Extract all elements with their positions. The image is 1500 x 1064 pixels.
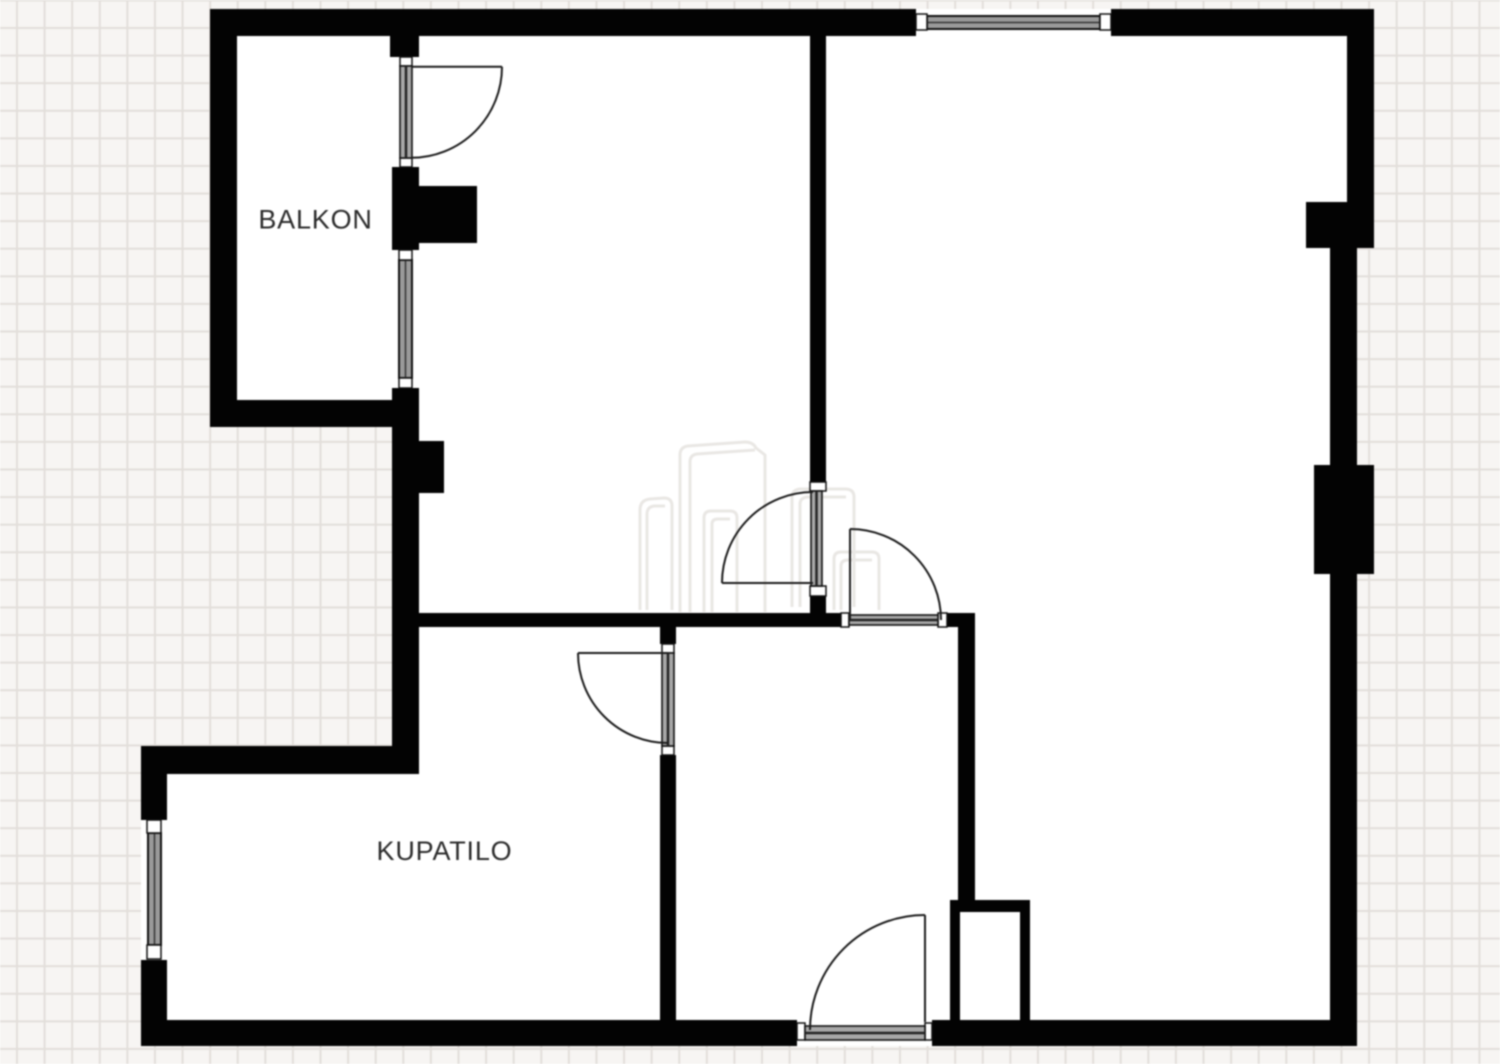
svg-text:BALKON: BALKON [258, 205, 372, 235]
svg-text:KUPATILO: KUPATILO [377, 836, 513, 866]
